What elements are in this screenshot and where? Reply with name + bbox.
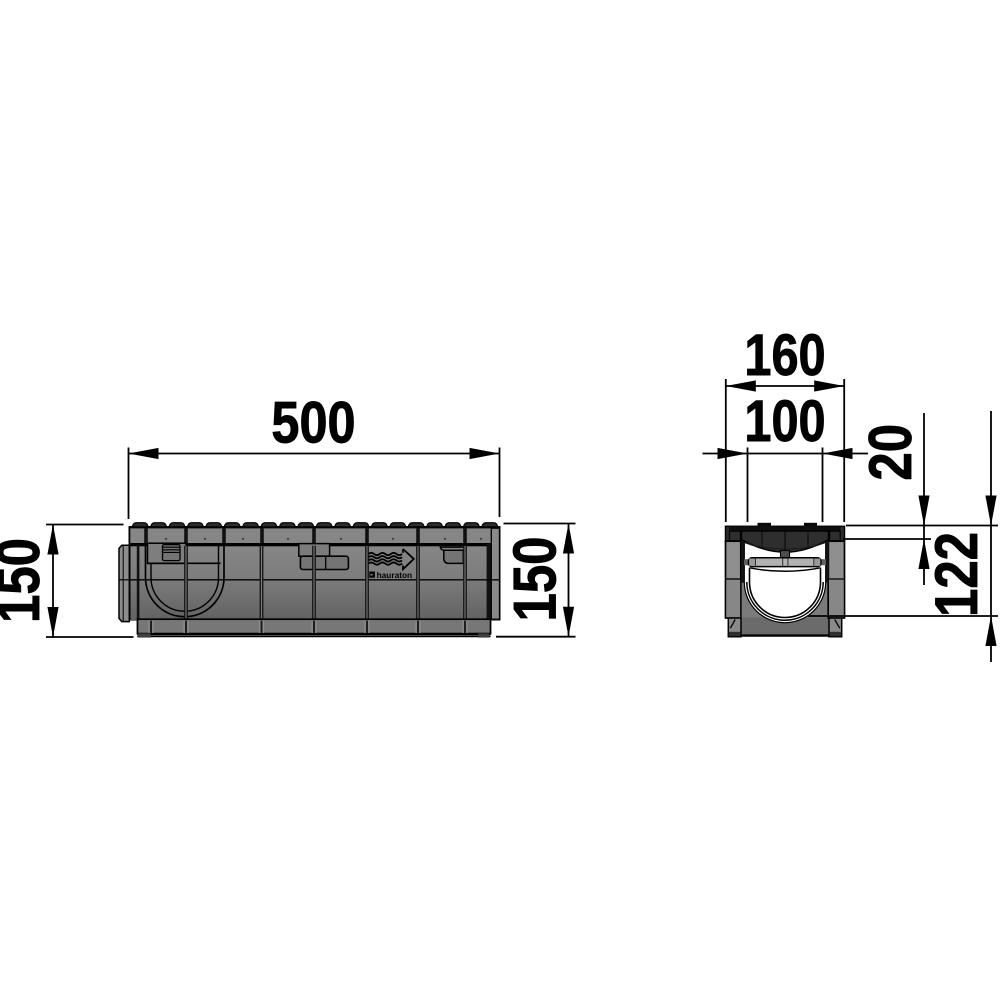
svg-text:20: 20	[857, 424, 924, 481]
svg-text:122: 122	[923, 532, 990, 617]
svg-text:100: 100	[744, 390, 825, 454]
svg-text:150: 150	[502, 536, 569, 621]
svg-text:hauraton: hauraton	[377, 571, 413, 580]
svg-text:500: 500	[271, 390, 355, 455]
svg-text:150: 150	[0, 538, 52, 623]
svg-text:160: 160	[744, 324, 825, 388]
